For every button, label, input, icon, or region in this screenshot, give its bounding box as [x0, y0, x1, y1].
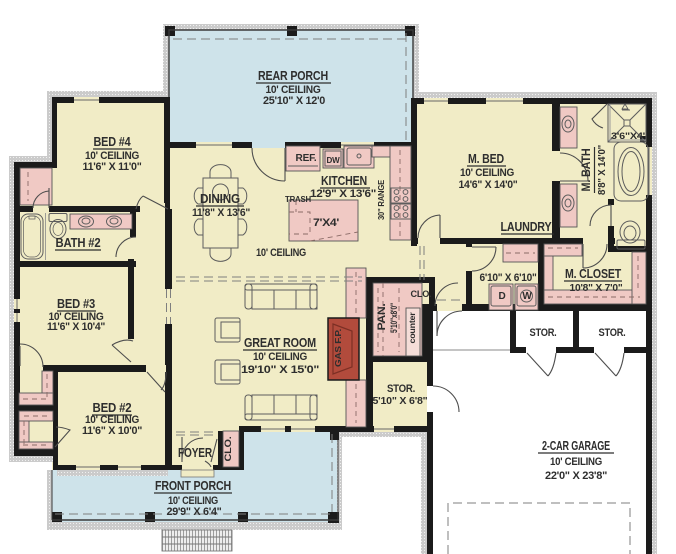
- svg-text:BED #2: BED #2: [93, 401, 132, 415]
- svg-text:DINING: DINING: [200, 192, 240, 206]
- svg-text:counter: counter: [408, 312, 417, 343]
- svg-text:REF.: REF.: [296, 153, 317, 164]
- svg-text:19'10" X 15'0": 19'10" X 15'0": [241, 364, 319, 376]
- svg-text:11'8" X 13'6": 11'8" X 13'6": [192, 207, 250, 219]
- svg-text:3'6"X4': 3'6"X4': [611, 131, 645, 141]
- svg-text:M. BATH: M. BATH: [579, 149, 593, 192]
- svg-text:CLO.: CLO.: [411, 289, 432, 299]
- svg-text:6'10" X 6'10": 6'10" X 6'10": [480, 272, 537, 284]
- svg-text:BED #3: BED #3: [57, 297, 95, 311]
- svg-text:8'8" X 14'0": 8'8" X 14'0": [597, 145, 608, 195]
- svg-text:REAR PORCH: REAR PORCH: [258, 69, 328, 83]
- svg-text:11'6" X 11'0": 11'6" X 11'0": [83, 161, 142, 173]
- svg-text:14'6" X 14'0": 14'6" X 14'0": [459, 179, 518, 191]
- svg-text:30" RANGE: 30" RANGE: [377, 179, 386, 220]
- svg-text:11'6" X 10'4": 11'6" X 10'4": [47, 321, 105, 333]
- svg-text:M. CLOSET: M. CLOSET: [565, 267, 621, 281]
- svg-text:KITCHEN: KITCHEN: [321, 174, 367, 188]
- svg-text:M. BED: M. BED: [468, 152, 504, 166]
- svg-text:10' CEILING: 10' CEILING: [460, 167, 514, 179]
- svg-text:2-CAR GARAGE: 2-CAR GARAGE: [542, 439, 610, 453]
- svg-text:FOYER: FOYER: [178, 446, 212, 460]
- svg-text:GREAT ROOM: GREAT ROOM: [244, 336, 316, 350]
- svg-text:BED #4: BED #4: [94, 135, 131, 149]
- svg-text:10' CEILING: 10' CEILING: [256, 247, 306, 259]
- svg-text:FRONT PORCH: FRONT PORCH: [155, 479, 231, 493]
- svg-text:25'10" X 12'0: 25'10" X 12'0: [263, 95, 325, 107]
- svg-text:BATH #2: BATH #2: [56, 236, 101, 250]
- svg-text:22'0" X 23'8": 22'0" X 23'8": [545, 470, 607, 482]
- svg-text:W: W: [522, 291, 532, 302]
- svg-text:5'10"x8'0": 5'10"x8'0": [389, 303, 399, 333]
- svg-text:PAN.: PAN.: [376, 303, 388, 330]
- svg-text:STOR.: STOR.: [387, 383, 415, 395]
- svg-text:LAUNDRY: LAUNDRY: [501, 220, 553, 234]
- svg-text:STOR.: STOR.: [530, 327, 557, 339]
- svg-text:DW: DW: [327, 156, 341, 165]
- svg-text:CLO.: CLO.: [223, 437, 233, 462]
- svg-text:7'X4': 7'X4': [313, 217, 340, 229]
- svg-text:12'9" X 13'6": 12'9" X 13'6": [310, 188, 376, 200]
- svg-text:TRASH: TRASH: [285, 195, 311, 204]
- svg-text:GAS F.P.: GAS F.P.: [334, 329, 343, 367]
- svg-text:STOR.: STOR.: [599, 327, 626, 339]
- svg-text:29'9" X 6'4": 29'9" X 6'4": [167, 506, 222, 518]
- svg-text:10' CEILING: 10' CEILING: [253, 351, 307, 363]
- svg-text:10' CEILING: 10' CEILING: [550, 456, 602, 468]
- svg-text:D: D: [498, 291, 505, 302]
- svg-text:10'8" X 7'0": 10'8" X 7'0": [570, 283, 623, 294]
- svg-text:5'10" X 6'8": 5'10" X 6'8": [373, 396, 428, 407]
- svg-text:11'6" X 10'0": 11'6" X 10'0": [82, 425, 142, 437]
